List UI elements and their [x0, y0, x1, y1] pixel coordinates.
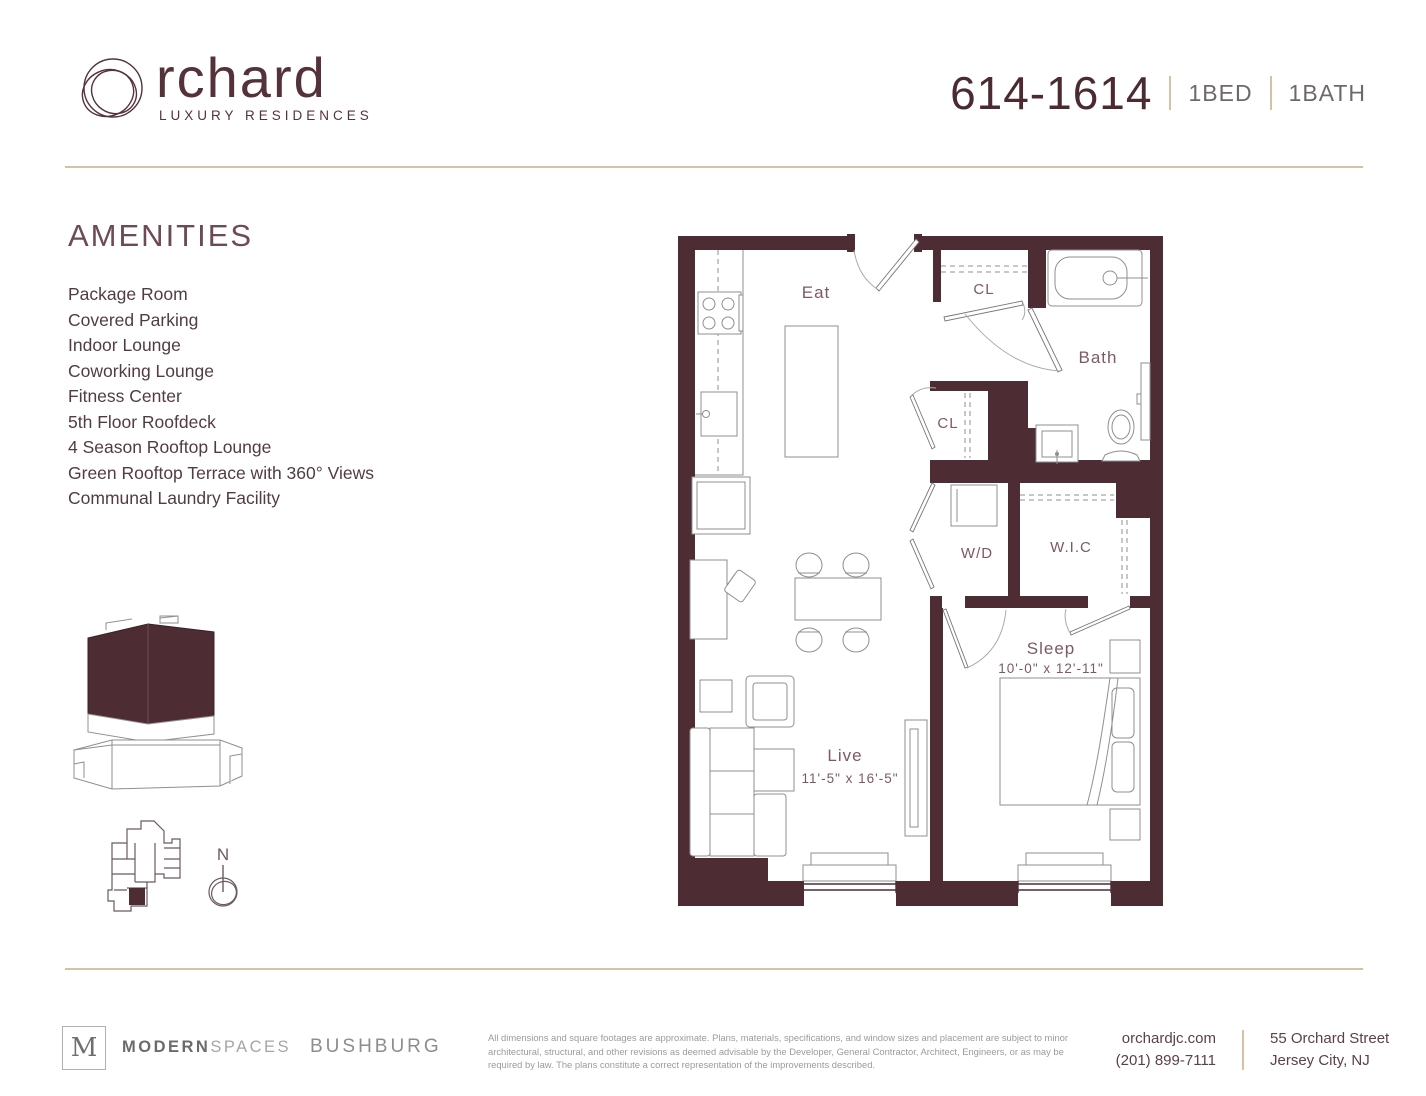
key-plan	[102, 818, 190, 922]
unit-bath-count: 1BATH	[1289, 80, 1366, 107]
brand-name: rchard	[156, 50, 373, 106]
amenity-item: Communal Laundry Facility	[68, 486, 488, 512]
nightstand-icon	[1110, 809, 1140, 840]
key-plan-unit-highlight	[129, 888, 145, 905]
nightstand-icon	[1110, 640, 1140, 673]
modern-spaces-bold: MODERN	[122, 1038, 210, 1056]
disclaimer-text: All dimensions and square footages are a…	[488, 1031, 1088, 1072]
north-arrow: N	[196, 844, 250, 914]
modern-spaces-logo: M	[62, 1026, 106, 1070]
floor-plan: Eat CL Bath CL W/D W.I.C Sleep 10'-0" x …	[678, 228, 1170, 912]
room-label-washer-dryer: W/D	[961, 545, 993, 562]
amenity-item: 4 Season Rooftop Lounge	[68, 435, 488, 461]
building-tower	[88, 624, 214, 724]
desk-icon	[690, 560, 756, 639]
amenity-item: Package Room	[68, 282, 488, 308]
brand-logo: rchard LUXURY RESIDENCES	[72, 50, 373, 130]
bed-icon	[1000, 678, 1140, 805]
bathtub-icon	[1048, 250, 1148, 306]
stove-icon	[698, 292, 743, 334]
amenity-item: Indoor Lounge	[68, 333, 488, 359]
room-dims-live: 11'-5" x 16'-5"	[801, 771, 898, 786]
armchair-icon	[700, 676, 794, 727]
bath-wall-niche	[1137, 363, 1150, 440]
brand-rings-icon	[72, 50, 152, 130]
kitchen-island	[785, 326, 838, 457]
room-label-live: Live	[827, 746, 862, 765]
living-window	[803, 853, 896, 893]
bushburg-wordmark: BUSHBURG	[310, 1036, 442, 1058]
top-rule	[65, 166, 1363, 168]
footer-website: orchardjc.com	[1098, 1028, 1216, 1050]
building-podium	[74, 740, 242, 789]
amenity-item: Green Rooftop Terrace with 360° Views	[68, 461, 488, 487]
toilet-icon	[1102, 410, 1140, 461]
room-label-eat: Eat	[802, 283, 831, 302]
amenities-title: AMENITIES	[68, 218, 488, 254]
room-label-closet-mid: CL	[937, 415, 958, 432]
north-label: N	[217, 845, 229, 864]
bath-door	[965, 308, 1062, 372]
header-divider	[1169, 76, 1171, 110]
washer-dryer-icon	[951, 485, 997, 526]
footer-phone: (201) 899-7111	[1098, 1050, 1216, 1072]
kitchen-sink-icon	[696, 392, 737, 436]
unit-bed-count: 1BED	[1188, 80, 1252, 107]
bedroom-door	[943, 609, 1006, 668]
footer-divider	[1242, 1030, 1244, 1070]
entry-door	[854, 239, 919, 291]
room-label-closet-top: CL	[973, 281, 994, 298]
amenities-list: Package Room Covered Parking Indoor Loun…	[68, 282, 488, 512]
modern-spaces-logo-letter: M	[71, 1033, 98, 1063]
walk-in-closet-door	[1065, 606, 1130, 635]
bottom-rule	[65, 968, 1363, 970]
footer-address-city: Jersey City, NJ	[1270, 1050, 1389, 1072]
amenities-section: AMENITIES Package Room Covered Parking I…	[68, 218, 488, 512]
amenity-item: Fitness Center	[68, 384, 488, 410]
bedroom-window	[1018, 853, 1111, 893]
dining-set-icon	[795, 553, 881, 652]
amenity-item: Covered Parking	[68, 308, 488, 334]
kitchen-counter	[695, 250, 743, 475]
room-label-bath: Bath	[1079, 348, 1118, 367]
modern-spaces-light: SPACES	[210, 1038, 291, 1056]
brand-tagline: LUXURY RESIDENCES	[159, 108, 373, 123]
bathroom-vanity-icon	[1036, 425, 1078, 464]
unit-number: 614-1614	[950, 66, 1152, 120]
fridge-icon	[692, 477, 750, 534]
building-illustration	[72, 604, 244, 796]
header-divider	[1270, 76, 1272, 110]
washer-dryer-doors	[910, 483, 935, 589]
room-dims-sleep: 10'-0" x 12'-11"	[998, 661, 1104, 676]
sofa-icon	[690, 728, 786, 856]
room-label-sleep: Sleep	[1027, 639, 1075, 658]
coffee-table-icon	[754, 749, 794, 791]
modern-spaces-wordmark: MODERNSPACES	[122, 1038, 291, 1057]
footer-contact: orchardjc.com (201) 899-7111 55 Orchard …	[1098, 1028, 1389, 1072]
amenity-item: 5th Floor Roofdeck	[68, 410, 488, 436]
room-label-walk-in-closet: W.I.C	[1050, 539, 1092, 556]
unit-header: 614-1614 1BED 1BATH	[950, 66, 1366, 120]
amenity-item: Coworking Lounge	[68, 359, 488, 385]
tv-console-icon	[905, 720, 927, 836]
footer-address-street: 55 Orchard Street	[1270, 1028, 1389, 1050]
